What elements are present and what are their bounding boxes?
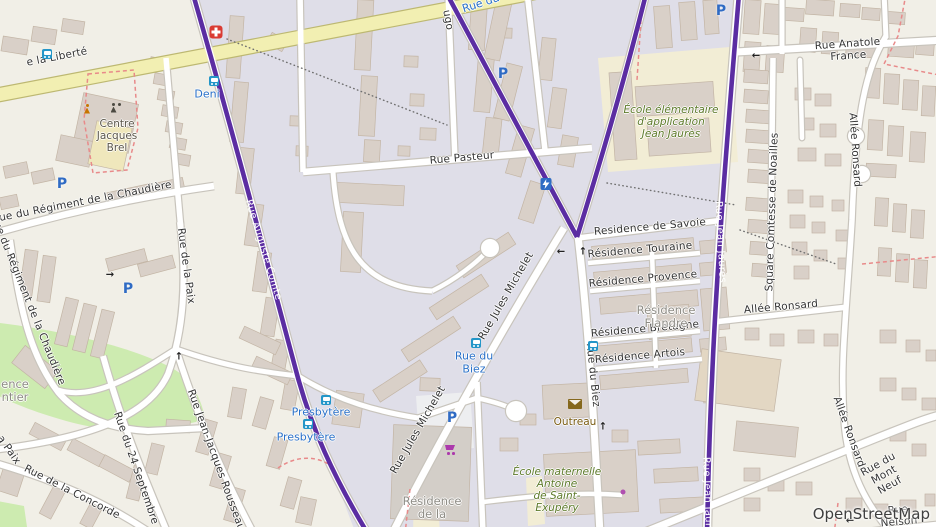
post-icon	[568, 399, 582, 409]
street-label: Rue du Biez	[584, 342, 603, 407]
bus-icon	[209, 76, 219, 86]
street-label: Square Comtesse de Noailles	[763, 132, 781, 291]
cart-icon	[444, 443, 458, 455]
bus-icon	[321, 395, 331, 405]
group-icon	[110, 103, 124, 113]
map-attribution[interactable]: OpenStreetMap	[813, 505, 930, 523]
street-label: Residence de Savoie	[593, 216, 706, 238]
dot-icon	[621, 490, 626, 495]
bus-stop-label: Rue du	[461, 0, 501, 16]
bus-icon	[42, 49, 52, 59]
school-label: École maternelle Antoine de Saint- Exupé…	[513, 466, 602, 514]
poi-label: Centre Jacques Brel	[97, 118, 138, 154]
onroute-label: Rue Auguste Comte	[242, 198, 284, 301]
street-label: Rue de la Concorde	[22, 463, 122, 522]
parking-icon: P	[447, 410, 457, 426]
arrow-icon: ↑	[599, 422, 607, 433]
street-label: a Paix	[0, 433, 23, 466]
street-label: Résidence Touraine	[587, 239, 693, 260]
arrow-icon: ←	[557, 247, 565, 258]
street-label: Rue Anatole France	[803, 35, 892, 65]
street-label: Allée Ronsard	[846, 112, 863, 187]
bus-icon	[588, 341, 598, 351]
school-label: École élémentaire d'application Jean Jau…	[624, 104, 719, 140]
street-label: Allée Ronsard	[831, 395, 868, 469]
street-label: ugo	[440, 9, 455, 31]
street-label: Résidence Provence	[588, 268, 697, 290]
street-label: Allée Ronsard	[743, 298, 818, 317]
parking-icon: P	[498, 66, 508, 82]
charging-icon	[541, 178, 552, 190]
bus-icon	[303, 419, 313, 429]
street-label: Résidence Artois	[594, 346, 685, 366]
bus-stop-label: Rue du Biez	[455, 350, 493, 375]
street-label: Rue du Régiment de la Chaudière	[0, 179, 173, 226]
map-labels-layer: e la LibertéRue du Régiment de la Chaudi…	[0, 0, 936, 527]
street-label: Rue de la Paix	[175, 227, 198, 305]
parking-icon: P	[716, 3, 726, 19]
bus-stop-label: Deni	[194, 89, 219, 102]
parking-icon: P	[123, 281, 133, 297]
street-label: Résidence Bretagne	[590, 318, 699, 339]
bus-icon	[471, 338, 481, 348]
bus-stop-label: Presbytère	[292, 407, 351, 420]
place-label: ence ntier	[1, 378, 29, 404]
street-label: Rue Jean-Jacques Rousseau	[185, 388, 247, 527]
street-label: Rue Jules Michelet	[476, 250, 536, 342]
street-label: Rue du Mont Neuf	[852, 447, 915, 504]
street-label: Rue Jules Michelet	[388, 384, 448, 476]
street-label: Rue du Régiment de la Chaudière	[0, 213, 68, 387]
arrow-icon: ↑	[579, 247, 587, 258]
map[interactable]: e la LibertéRue du Régiment de la Chaudi…	[0, 0, 936, 527]
post-label: Outreau	[554, 416, 597, 428]
place-label: Résidence de la	[403, 495, 462, 521]
arrow-icon: ←	[752, 51, 760, 62]
street-label: Rue du 24 Septembre	[111, 410, 161, 526]
person-icon	[82, 104, 92, 114]
onroute-label: Rue Jean Jaurès	[700, 457, 714, 527]
street-label: Rue Pasteur	[429, 149, 495, 167]
pharmacy-icon	[210, 26, 223, 39]
place-label: Résidence Flandre	[637, 304, 696, 330]
street-label: e la Liberté	[26, 45, 89, 69]
arrow-icon: ↑	[175, 352, 183, 363]
bus-stop-label: Presbytère	[277, 432, 336, 445]
arrow-icon: →	[106, 270, 114, 281]
onroute-label: Rue Jean Jaurès	[712, 201, 728, 284]
parking-icon: P	[57, 176, 67, 192]
